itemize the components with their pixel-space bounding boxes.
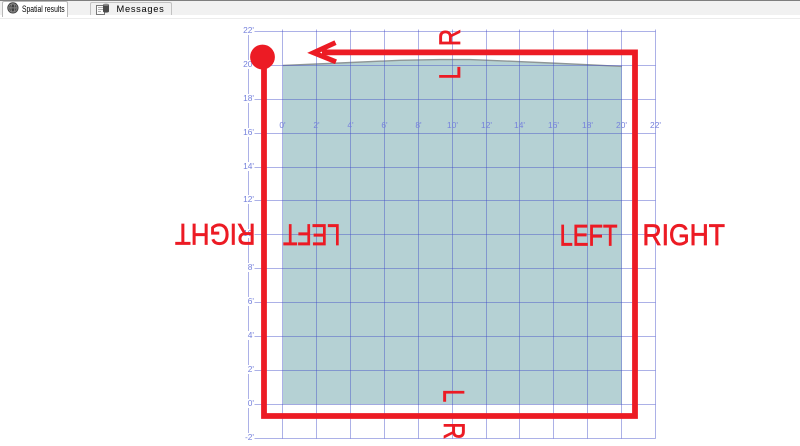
- svg-text:0': 0': [279, 120, 286, 130]
- svg-text:LEFT: LEFT: [560, 219, 618, 252]
- svg-text:RIGHT: RIGHT: [643, 219, 726, 252]
- svg-text:R: R: [437, 422, 470, 439]
- svg-text:8': 8': [415, 120, 422, 130]
- svg-text:4': 4': [347, 120, 354, 130]
- svg-text:10': 10': [447, 120, 458, 130]
- svg-text:8': 8': [248, 262, 255, 272]
- svg-text:R: R: [434, 29, 467, 46]
- svg-text:14': 14': [514, 120, 525, 130]
- svg-text:12': 12': [243, 194, 254, 204]
- svg-text:20': 20': [616, 120, 627, 130]
- svg-text:-2': -2': [245, 432, 254, 442]
- svg-text:16': 16': [243, 127, 254, 137]
- svg-text:2': 2': [313, 120, 320, 130]
- svg-text:L: L: [434, 66, 467, 79]
- svg-text:L: L: [437, 389, 470, 402]
- svg-text:0': 0': [248, 398, 255, 408]
- svg-text:14': 14': [243, 161, 254, 171]
- svg-text:22': 22': [243, 25, 254, 35]
- svg-text:2': 2': [248, 364, 255, 374]
- svg-text:6': 6': [248, 296, 255, 306]
- svg-text:12': 12': [481, 120, 492, 130]
- svg-text:16': 16': [548, 120, 559, 130]
- svg-text:18': 18': [582, 120, 593, 130]
- svg-text:22': 22': [650, 120, 661, 130]
- svg-text:4': 4': [248, 330, 255, 340]
- svg-text:RIGHT: RIGHT: [175, 217, 256, 250]
- svg-text:18': 18': [243, 93, 254, 103]
- svg-text:LEFT: LEFT: [283, 218, 340, 251]
- svg-text:6': 6': [381, 120, 388, 130]
